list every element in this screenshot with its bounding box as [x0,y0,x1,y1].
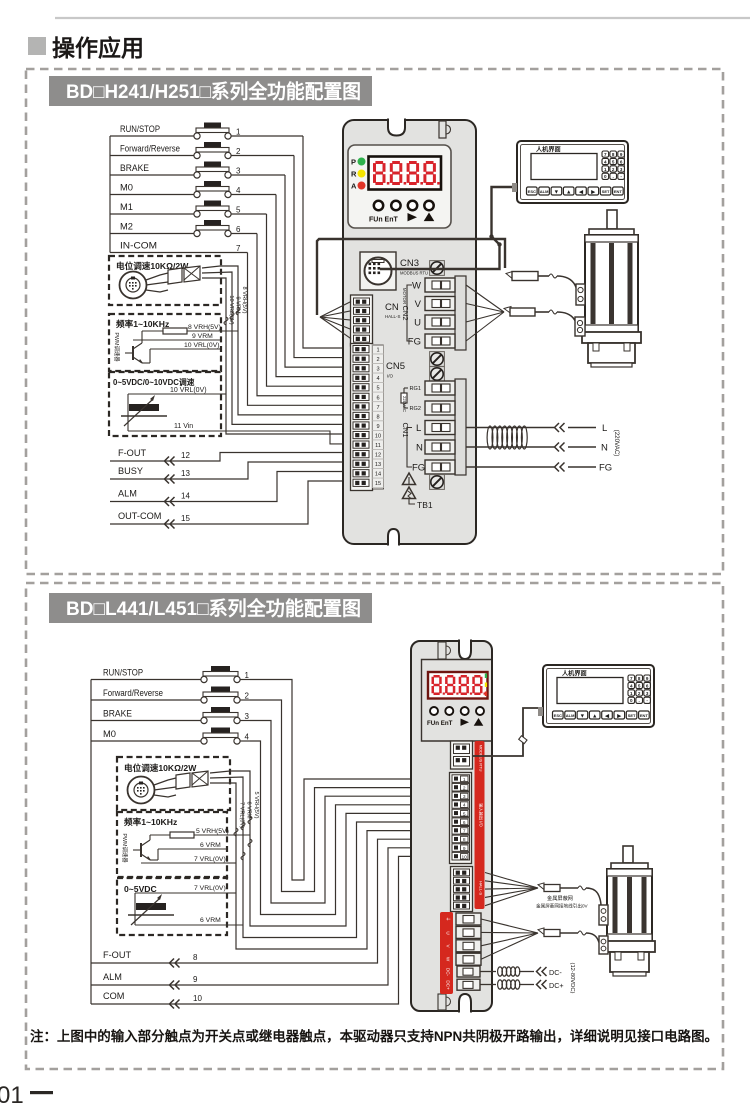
svg-text:DC+: DC+ [549,981,564,990]
svg-text:5 VRH(5V): 5 VRH(5V) [196,828,229,835]
svg-text:BUSY: BUSY [118,466,143,476]
svg-text:MOTOR: MOTOR [402,288,407,304]
svg-text:10: 10 [462,854,468,860]
svg-text:ALM: ALM [566,713,575,718]
svg-text:2: 2 [638,691,641,696]
svg-text:1: 1 [463,777,466,783]
svg-text:9: 9 [620,152,623,157]
svg-text:金属屏蔽网接地线引出0V: 金属屏蔽网接地线引出0V [536,903,588,910]
svg-text:ALM: ALM [540,189,549,194]
svg-text:1: 1 [236,128,241,137]
svg-text:3: 3 [646,691,649,696]
svg-text:5 VRH(5V): 5 VRH(5V) [253,791,259,818]
svg-text:FG: FG [408,337,421,348]
svg-text:4: 4 [630,683,633,688]
svg-text:6: 6 [463,820,466,826]
svg-text:F-OUT: F-OUT [118,448,146,458]
svg-text:R: R [351,170,357,179]
svg-text:MODBUS RTU: MODBUS RTU [479,745,484,772]
svg-text:8: 8 [193,953,198,962]
svg-text:FG: FG [599,463,612,474]
svg-text:L: L [602,423,607,434]
svg-text:7: 7 [630,676,633,681]
svg-text:ENT: ENT [614,189,623,194]
svg-text:ALM: ALM [118,489,137,499]
svg-text:RUN/STOP: RUN/STOP [103,668,143,678]
svg-text:7: 7 [236,244,241,253]
svg-text:操作应用: 操作应用 [52,35,144,61]
svg-text:U: U [446,931,451,934]
svg-text:M0: M0 [120,183,133,193]
svg-text:HALL-S: HALL-S [479,881,484,895]
svg-text:220VAC: 220VAC [402,396,407,412]
svg-text:TB1: TB1 [417,500,433,510]
svg-text:8: 8 [612,152,615,157]
svg-text:RG2: RG2 [410,406,422,412]
svg-text:2: 2 [612,167,615,172]
svg-text:2: 2 [376,357,379,363]
svg-text:0~5VDC/0~10VDC调速: 0~5VDC/0~10VDC调速 [113,377,195,387]
svg-text:BD□L441/L451□系列全功能配置图: BD□L441/L451□系列全功能配置图 [66,597,361,620]
svg-text:▼: ▼ [554,190,559,196]
svg-text:PWM调速器: PWM调速器 [121,833,129,863]
svg-text:BRAKE: BRAKE [103,709,132,719]
svg-text:10: 10 [375,433,381,439]
svg-text:4: 4 [376,376,379,382]
svg-text:4: 4 [604,159,607,164]
svg-text:10 VRL(0V): 10 VRL(0V) [228,295,234,324]
svg-text:⏚: ⏚ [446,917,452,922]
svg-text:DC-: DC- [446,968,451,977]
svg-text:01: 01 [0,1082,24,1109]
svg-text:M2: M2 [120,222,133,232]
svg-text:15: 15 [181,514,190,523]
svg-text:7 VRL(0V): 7 VRL(0V) [194,856,226,863]
svg-text:L: L [416,423,421,434]
svg-text:12: 12 [181,451,190,460]
svg-text:SET: SET [602,189,610,194]
svg-text:PWM调速器: PWM调速器 [113,332,121,362]
svg-text:A: A [351,182,357,191]
svg-text:Forward/Reverse: Forward/Reverse [120,144,180,154]
svg-text:BD□H241/H251□系列全功能配置图: BD□H241/H251□系列全功能配置图 [66,80,361,103]
svg-text:9 VRM: 9 VRM [192,333,213,340]
svg-text:0: 0 [630,698,633,703]
svg-text:FUn EnT: FUn EnT [427,720,453,727]
svg-text:6 VRM: 6 VRM [200,842,221,849]
svg-text:13: 13 [181,469,190,478]
svg-text:人机界面: 人机界面 [536,146,561,154]
svg-text:1: 1 [604,167,607,172]
svg-text:频率1~10KHz: 频率1~10KHz [124,816,177,827]
svg-text:8: 8 [638,676,641,681]
svg-text:V: V [415,299,422,310]
svg-text:Forward/Reverse: Forward/Reverse [103,688,163,698]
svg-text:CN1: CN1 [401,422,410,437]
svg-text:11: 11 [375,443,381,449]
svg-text:ESC: ESC [528,189,536,194]
svg-text:CN: CN [385,302,399,313]
svg-text:3: 3 [620,167,623,172]
svg-text:人机界面: 人机界面 [562,670,587,678]
svg-text:2: 2 [245,692,250,701]
svg-text:金属屏蔽网: 金属屏蔽网 [547,894,573,902]
svg-text:3: 3 [463,794,466,800]
svg-text:2: 2 [236,147,241,156]
svg-text:F-OUT: F-OUT [103,950,131,960]
svg-text:.: . [613,174,614,179]
svg-text:6 VRM: 6 VRM [200,917,221,924]
svg-text:4: 4 [236,186,241,195]
svg-text:10 VRL(0V): 10 VRL(0V) [184,342,220,349]
svg-text:CN5: CN5 [386,361,405,372]
svg-text:P: P [351,158,356,167]
svg-text:15: 15 [375,481,381,487]
svg-text:I/O: I/O [387,374,394,379]
svg-text:7: 7 [604,152,607,157]
svg-text:M0: M0 [103,729,116,739]
svg-text:COM: COM [103,991,124,1001]
svg-text:6: 6 [620,159,623,164]
svg-text:10 VRL(0V): 10 VRL(0V) [170,387,207,394]
svg-text:9: 9 [193,975,198,984]
svg-text:13: 13 [375,462,381,468]
svg-text:11 Vin: 11 Vin [174,423,193,430]
svg-text:4: 4 [245,733,250,742]
svg-text:(12-80VDC): (12-80VDC) [569,963,575,994]
svg-text:5: 5 [236,206,241,215]
svg-text:CN3: CN3 [400,258,419,269]
svg-text:M1: M1 [120,202,133,212]
svg-text:8 VRH(5V): 8 VRH(5V) [241,286,247,313]
svg-text:9: 9 [376,424,379,430]
svg-text:5: 5 [612,159,615,164]
svg-text:2: 2 [463,785,466,791]
svg-text:DC-: DC- [549,968,562,977]
svg-text:FG: FG [412,463,425,474]
svg-text:14: 14 [181,492,190,501]
svg-text:OUT-COM: OUT-COM [118,511,161,521]
svg-text:CN2: CN2 [401,305,410,320]
svg-text:1: 1 [630,691,633,696]
svg-text:频率1~10KHz: 频率1~10KHz [116,318,169,329]
svg-text:输入输出 I/O: 输入输出 I/O [478,803,485,827]
svg-text:6: 6 [376,395,379,401]
svg-text:1: 1 [376,348,379,354]
svg-text:0: 0 [604,174,607,179]
svg-text:SET: SET [628,713,636,718]
svg-text:MODBUS RTU: MODBUS RTU [400,271,428,276]
svg-text:RG1: RG1 [410,386,422,392]
svg-text:3: 3 [236,167,241,176]
svg-text:▼: ▼ [580,714,585,720]
svg-text:8: 8 [376,414,379,420]
svg-text:8 VRH(5V): 8 VRH(5V) [188,324,221,331]
svg-text:.: . [639,698,640,703]
svg-text:3: 3 [245,712,250,721]
svg-text:电位调速10KΩ/2W: 电位调速10KΩ/2W [124,762,197,773]
svg-text:5: 5 [638,683,641,688]
svg-text:U: U [414,318,421,329]
svg-text:N: N [601,443,608,454]
svg-text:5: 5 [463,811,466,817]
svg-text:(220VAC): (220VAC) [613,430,620,457]
svg-text:ALM: ALM [103,972,122,982]
svg-text:6: 6 [236,225,241,234]
svg-text:6: 6 [646,683,649,688]
svg-text:▲: ▲ [592,714,597,720]
svg-text:8: 8 [463,837,466,843]
svg-text:9: 9 [463,846,466,852]
svg-text:1: 1 [245,671,250,680]
svg-text:7 VRL(0V): 7 VRL(0V) [194,885,226,892]
svg-text:FUn EnT: FUn EnT [369,217,398,224]
svg-text:3: 3 [376,367,379,373]
svg-text:ESC: ESC [554,713,562,718]
svg-text:HALL-S: HALL-S [385,314,400,319]
svg-text:14: 14 [375,472,381,478]
svg-text:ENT: ENT [640,713,649,718]
svg-text:7: 7 [376,405,379,411]
svg-text:RUN/STOP: RUN/STOP [120,124,160,134]
svg-text:10: 10 [193,994,202,1003]
svg-text:5: 5 [376,386,379,392]
svg-text:9: 9 [646,676,649,681]
svg-text:▲: ▲ [566,190,571,196]
svg-text:12: 12 [375,453,381,459]
svg-text:N: N [416,443,423,454]
svg-text:W: W [446,957,451,962]
svg-text:4: 4 [463,803,466,809]
svg-text:W: W [412,281,421,292]
svg-text:7: 7 [463,829,466,835]
svg-text:DC+: DC+ [446,980,451,990]
svg-text:7 VRL(0V): 7 VRL(0V) [239,802,245,828]
svg-text:注：上图中的输入部分触点为开关点或继电器触点，本驱动器只支持: 注：上图中的输入部分触点为开关点或继电器触点，本驱动器只支持NPN共阴极开路输出… [30,1028,718,1044]
svg-text:BRAKE: BRAKE [120,163,149,173]
svg-text:IN-COM: IN-COM [120,241,157,251]
